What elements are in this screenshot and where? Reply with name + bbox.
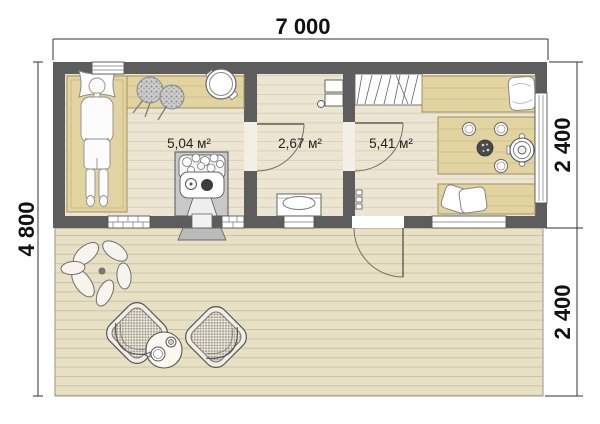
washbasin-icon xyxy=(277,194,321,216)
area-label-sauna: 5,04 м² xyxy=(167,136,211,151)
lounge-bottom-bench xyxy=(438,184,535,215)
window-lounge-icon xyxy=(432,216,506,228)
dimension-right-top-label: 2 400 xyxy=(550,117,575,172)
window-washroom-icon xyxy=(284,216,314,228)
dimension-top-label: 7 000 xyxy=(275,14,330,39)
window-top-icon xyxy=(92,62,124,74)
wall-hooks-icon xyxy=(356,190,362,209)
dining-table xyxy=(438,117,535,174)
food-tray-icon xyxy=(477,140,493,156)
floor-plan-svg: 5,04 м² 2,67 м² 5,41 м² 7 000 4 800 2 40… xyxy=(0,0,600,424)
window-right-icon xyxy=(535,93,547,203)
dimension-right-bottom-label: 2 400 xyxy=(550,284,575,339)
coffee-table-icon xyxy=(145,332,182,368)
cup-icon xyxy=(166,337,176,347)
dimension-top: 7 000 xyxy=(53,14,548,60)
plate-icon xyxy=(495,160,508,173)
area-label-lounge: 5,41 м² xyxy=(369,136,413,151)
area-label-washroom: 2,67 м² xyxy=(278,136,322,151)
dimension-left: 4 800 xyxy=(14,62,43,396)
dimension-right: 2 400 2 400 xyxy=(545,62,583,396)
plate-icon xyxy=(495,123,508,136)
bed-pillow-icon xyxy=(508,76,536,111)
terrace-deck xyxy=(55,228,543,396)
brick-vent-icon xyxy=(222,216,244,228)
dimension-left-label: 4 800 xyxy=(14,201,39,256)
wardrobe-icon xyxy=(355,74,422,105)
plate-icon xyxy=(463,123,476,136)
floor-plan-image: 5,04 м² 2,67 м² 5,41 м² 7 000 4 800 2 40… xyxy=(0,0,600,424)
brick-vent-icon xyxy=(108,216,150,228)
